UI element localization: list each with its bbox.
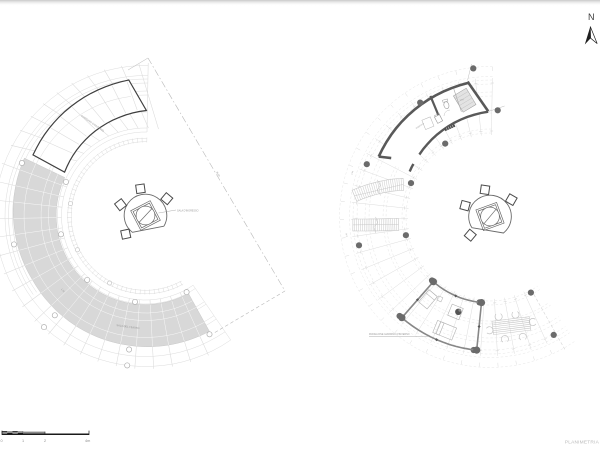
- svg-text:2: 2: [44, 439, 46, 443]
- svg-text:0: 0: [1, 439, 3, 443]
- svg-text:PLANIMETRIA: PLANIMETRIA: [565, 440, 600, 446]
- svg-text:N: N: [588, 12, 595, 22]
- svg-text:SALA D'INGRESSO: SALA D'INGRESSO: [177, 210, 199, 213]
- svg-text:1: 1: [22, 439, 24, 443]
- svg-text:4m: 4m: [85, 439, 90, 443]
- svg-text:PADIGLIONE GIARDINO D'INVERNO: PADIGLIONE GIARDINO D'INVERNO: [369, 333, 410, 336]
